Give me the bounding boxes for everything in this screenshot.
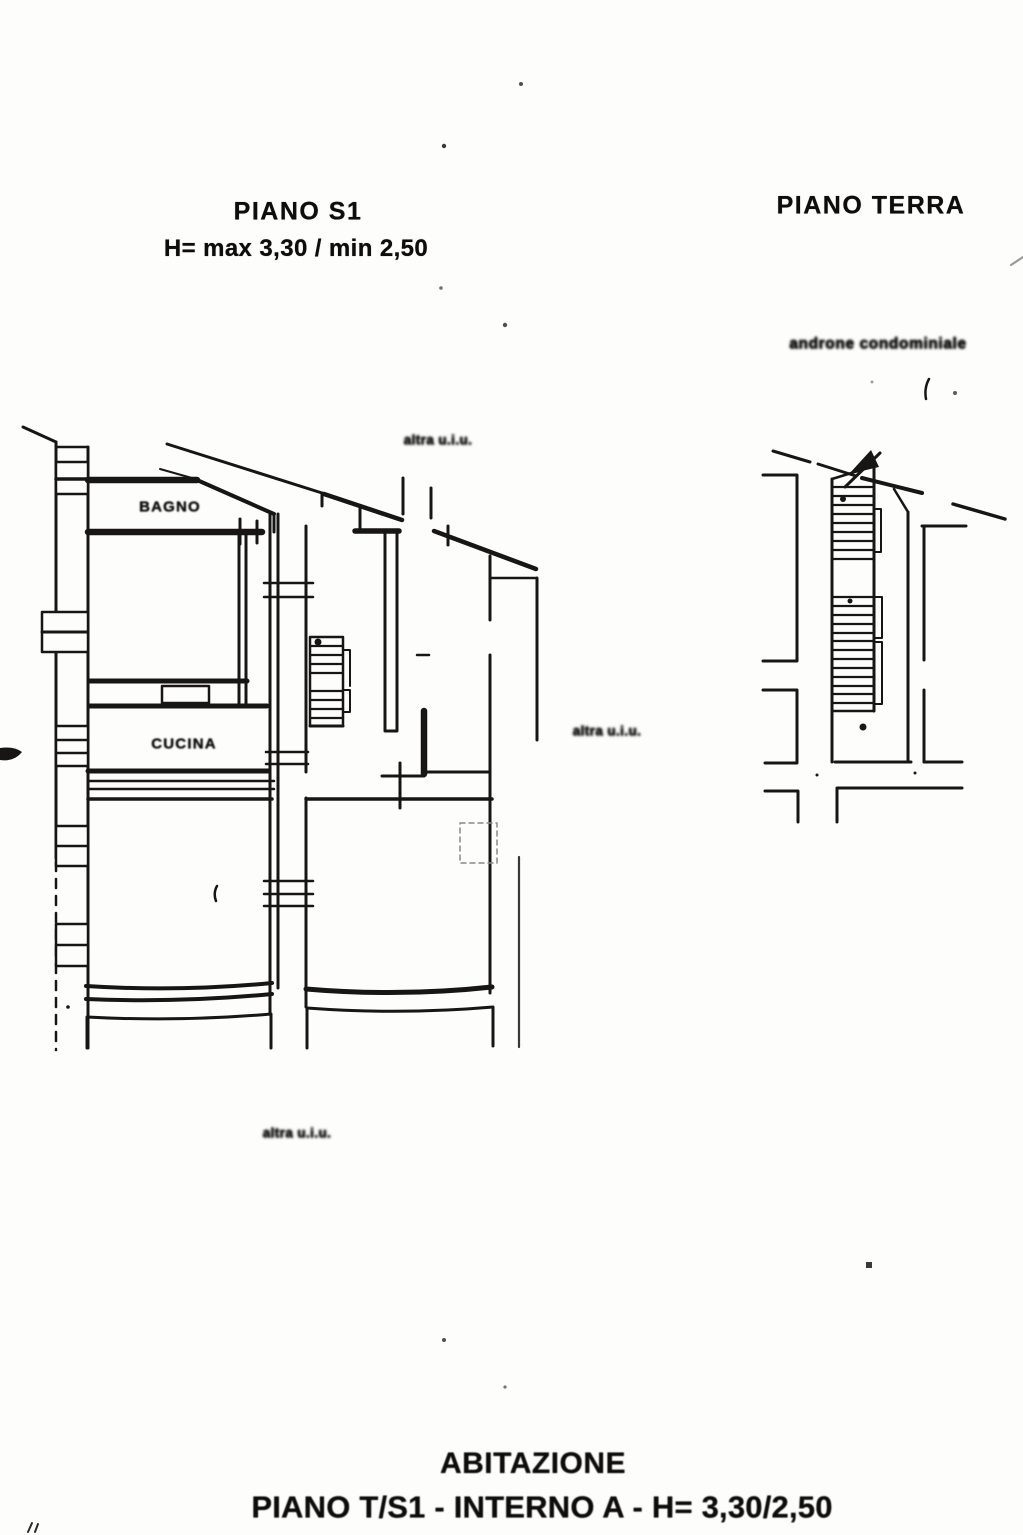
wall-bold xyxy=(86,983,272,988)
left-edge-text-remnant xyxy=(0,748,22,761)
wall xyxy=(922,526,966,762)
stair-treads-upper xyxy=(832,487,874,559)
passage-mark xyxy=(266,752,308,764)
scan-mark xyxy=(66,1005,70,1009)
wall xyxy=(773,451,856,476)
room-label-bagno: BAGNO xyxy=(139,500,201,515)
wall xyxy=(385,533,397,731)
wall xyxy=(23,427,56,442)
wall xyxy=(167,444,322,493)
wall xyxy=(88,781,274,789)
wall xyxy=(837,788,962,822)
wall xyxy=(307,1007,493,1048)
window-box xyxy=(56,462,88,494)
wall xyxy=(403,478,431,518)
edge-tick xyxy=(1011,257,1023,265)
wall xyxy=(763,690,797,763)
plan-s1-height-note: H= max 3,30 / min 2,50 xyxy=(164,237,428,261)
window-box xyxy=(56,826,88,866)
scan-mark xyxy=(215,886,217,901)
wall xyxy=(239,532,246,704)
window-box xyxy=(56,924,88,966)
wall xyxy=(765,791,798,822)
adjacent-unit-label-top: altra u.i.u. xyxy=(404,433,473,447)
wall xyxy=(324,494,402,520)
stair-treads-lower xyxy=(832,597,874,703)
floorplan-drawing xyxy=(0,0,1023,1535)
plan-piano-terra xyxy=(763,450,1005,822)
wall xyxy=(894,489,908,512)
apostrophe-mark xyxy=(925,379,929,399)
wall-bold xyxy=(306,987,492,993)
adjacent-unit-label-bottom: altra u.i.u. xyxy=(263,1126,332,1140)
caption-line1: ABITAZIONE xyxy=(440,1449,626,1479)
adjacent-unit-label-right: altra u.i.u. xyxy=(573,724,642,738)
wall xyxy=(87,1014,271,1048)
scan-mark xyxy=(914,772,917,775)
plan-terra-title: PIANO TERRA xyxy=(777,194,966,219)
plan-piano-s1 xyxy=(23,427,537,1050)
window-box xyxy=(56,726,88,766)
staircase-s1 xyxy=(310,637,350,726)
wall xyxy=(197,480,274,514)
niche xyxy=(162,686,209,703)
window-box xyxy=(42,612,88,652)
wall xyxy=(763,475,797,661)
caption-line2: PIANO T/S1 - INTERNO A - H= 3,30/2,50 xyxy=(251,1492,832,1523)
wall xyxy=(862,478,922,493)
plan-s1-title: PIANO S1 xyxy=(234,200,363,225)
scanned-floorplan-page: PIANO S1 H= max 3,30 / min 2,50 PIANO TE… xyxy=(0,0,1023,1535)
wall xyxy=(953,504,1005,519)
scan-mark xyxy=(816,774,819,777)
androne-condominiale-label: androne condominiale xyxy=(789,336,966,352)
staircase-terra xyxy=(832,466,882,762)
room-label-cucina: CUCINA xyxy=(151,737,217,752)
scan-specks xyxy=(0,82,1023,1532)
wall-bold xyxy=(86,994,272,1000)
stair-treads xyxy=(310,646,343,718)
corner-marks xyxy=(28,1523,38,1532)
wall xyxy=(382,772,490,776)
